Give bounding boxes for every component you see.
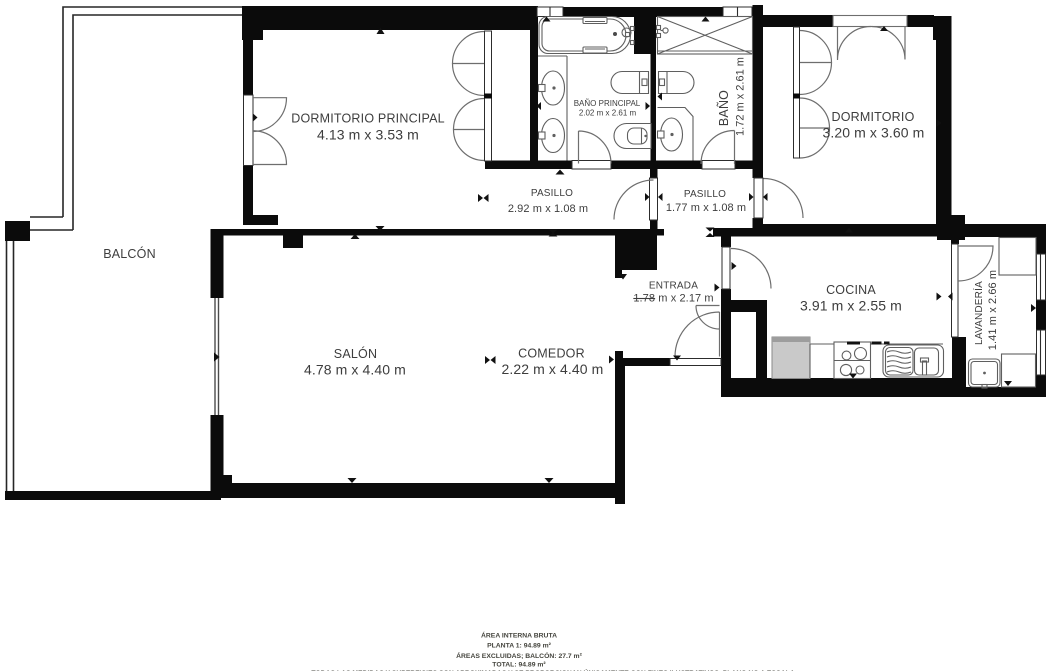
svg-text:DORMITORIO: DORMITORIO (831, 110, 914, 124)
svg-text:COMEDOR: COMEDOR (518, 347, 585, 361)
svg-text:COCINA: COCINA (826, 283, 876, 297)
svg-text:1.78 m x 2.17 m: 1.78 m x 2.17 m (633, 293, 713, 305)
svg-text:1.72 m x 2.61 m: 1.72 m x 2.61 m (735, 57, 747, 136)
svg-text:2.22 m x 4.40 m: 2.22 m x 4.40 m (502, 361, 604, 377)
svg-text:BAÑO PRINCIPAL: BAÑO PRINCIPAL (574, 99, 641, 108)
svg-text:PASILLO: PASILLO (531, 188, 573, 199)
svg-text:ENTRADA: ENTRADA (649, 281, 698, 292)
svg-text:3.20 m x 3.60 m: 3.20 m x 3.60 m (823, 125, 925, 141)
svg-text:TOTAL: 94.89 m²: TOTAL: 94.89 m² (492, 662, 546, 669)
svg-text:ÁREAS EXCLUIDAS; BALCÓN: 27.7: ÁREAS EXCLUIDAS; BALCÓN: 27.7 m² (456, 651, 582, 660)
svg-text:PLANTA 1: 94.89 m²: PLANTA 1: 94.89 m² (487, 643, 552, 650)
svg-text:BALCÓN: BALCÓN (103, 246, 156, 261)
svg-text:BAÑO: BAÑO (717, 90, 731, 126)
svg-text:DORMITORIO PRINCIPAL: DORMITORIO PRINCIPAL (291, 112, 445, 126)
svg-text:2.92 m x 1.08 m: 2.92 m x 1.08 m (508, 203, 588, 215)
svg-text:LAVANDERÍA: LAVANDERÍA (972, 281, 985, 345)
svg-text:3.91 m x 2.55 m: 3.91 m x 2.55 m (800, 298, 902, 314)
svg-text:4.13 m x 3.53 m: 4.13 m x 3.53 m (317, 127, 419, 143)
svg-text:SALÓN: SALÓN (334, 346, 377, 361)
svg-text:2.02 m x 2.61 m: 2.02 m x 2.61 m (579, 109, 637, 118)
svg-text:1.77 m x 1.08 m: 1.77 m x 1.08 m (666, 202, 746, 214)
svg-text:ÁREA INTERNA BRUTA: ÁREA INTERNA BRUTA (481, 631, 557, 640)
svg-text:PASILLO: PASILLO (684, 189, 726, 200)
svg-text:4.78 m x 4.40 m: 4.78 m x 4.40 m (304, 362, 406, 378)
svg-text:1.41 m x 2.66 m: 1.41 m x 2.66 m (987, 270, 999, 350)
